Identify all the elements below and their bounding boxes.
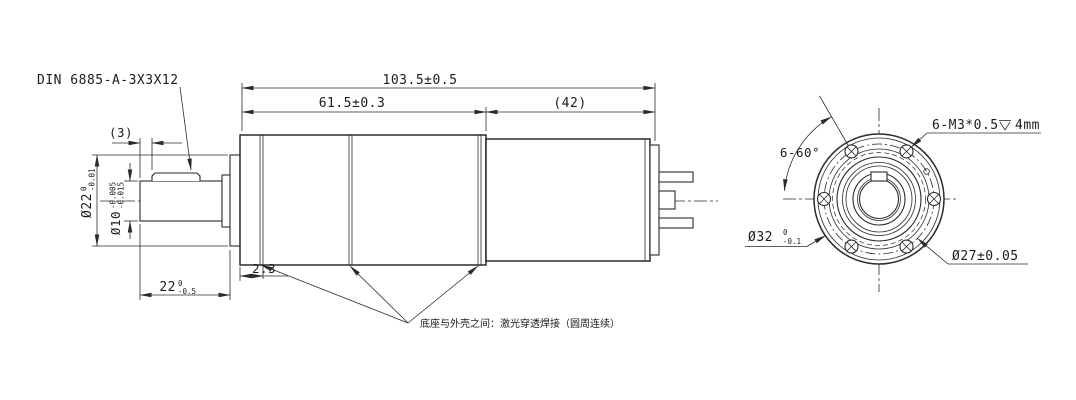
- gearbox-housing: [240, 135, 486, 265]
- dim-flange-diameter: Ø32 0 -0.1: [745, 228, 826, 247]
- dim-bolt-circle: Ø27±0.05: [918, 239, 1029, 265]
- dim-overall-length: 103.5±0.5: [242, 73, 655, 141]
- tapped-hole: [818, 193, 831, 206]
- shaft-length-tol-lower: -0.5: [178, 287, 196, 296]
- boss-diameter-label: Ø22: [80, 193, 95, 218]
- tapped-hole: [900, 240, 913, 253]
- side-view: [100, 135, 718, 279]
- weld-offset-label: 2.3: [252, 261, 276, 276]
- motor-back-cap: [650, 145, 659, 255]
- hole-angle-label: 6-60°: [780, 145, 820, 160]
- shaft-tol-lower: -0.015: [117, 182, 126, 209]
- tapped-hole: [845, 240, 858, 253]
- flange-tol-lower: -0.1: [783, 237, 801, 246]
- terminal-tab-top: [659, 172, 693, 182]
- thread-spec-suffix: 4mm: [1015, 118, 1040, 133]
- dim-key-offset: (3): [109, 125, 182, 178]
- engineering-drawing-sheet: DIN 6885-A-3X3X12 103.5±0.5 61.5±0.3 (42…: [0, 0, 1076, 400]
- thread-spec-callout: 6-M3*0.5 4mm: [911, 118, 1041, 147]
- thread-depth-icon: [999, 121, 1011, 131]
- overall-length-label: 103.5±0.5: [383, 73, 458, 88]
- terminal-tab-bottom: [659, 218, 693, 228]
- key-spec-callout: DIN 6885-A-3X3X12: [37, 73, 191, 170]
- bolt-circle-label: Ø27±0.05: [952, 249, 1019, 264]
- tapped-hole: [845, 145, 858, 158]
- keyway: [871, 172, 887, 181]
- thread-spec-prefix: 6-M3*0.5: [932, 118, 999, 133]
- key-spec-label: DIN 6885-A-3X3X12: [37, 73, 179, 88]
- tapped-hole: [900, 145, 913, 158]
- key-spec-leader: [180, 87, 191, 170]
- flange-tol-upper: 0: [783, 228, 788, 237]
- shaft-length-label: 22: [159, 280, 176, 295]
- weld-note-callout: 底座与外壳之间：激光穿透焊接（圆周连续）: [261, 265, 620, 330]
- gearbox-length-label: 61.5±0.3: [319, 96, 386, 111]
- rear-center-boss: [659, 191, 675, 209]
- shaft-collar: [222, 175, 230, 227]
- dim-section-lengths: 61.5±0.3 (42): [242, 96, 655, 131]
- dim-shaft-length: 22 0 -0.5: [140, 224, 230, 300]
- boss-tol-lower: -0.01: [88, 168, 97, 191]
- output-shaft: [140, 181, 222, 221]
- motor-housing: [486, 139, 650, 261]
- shaft-diameter-label: Ø10: [108, 211, 123, 235]
- shaft-key: [152, 173, 200, 181]
- drawing-canvas: DIN 6885-A-3X3X12 103.5±0.5 61.5±0.3 (42…: [0, 0, 1076, 400]
- weld-note-text: 底座与外壳之间：激光穿透焊接（圆周连续）: [420, 317, 620, 330]
- pilot-boss: [230, 155, 240, 246]
- motor-length-label: (42): [553, 96, 586, 111]
- flange-diameter-label: Ø32: [748, 230, 773, 245]
- key-offset-label: (3): [109, 125, 133, 140]
- tapped-hole: [928, 193, 941, 206]
- end-view: 6-60° 6-M3*0.5 4mm Ø32 0 -0.1 Ø27±0.05: [745, 96, 1041, 292]
